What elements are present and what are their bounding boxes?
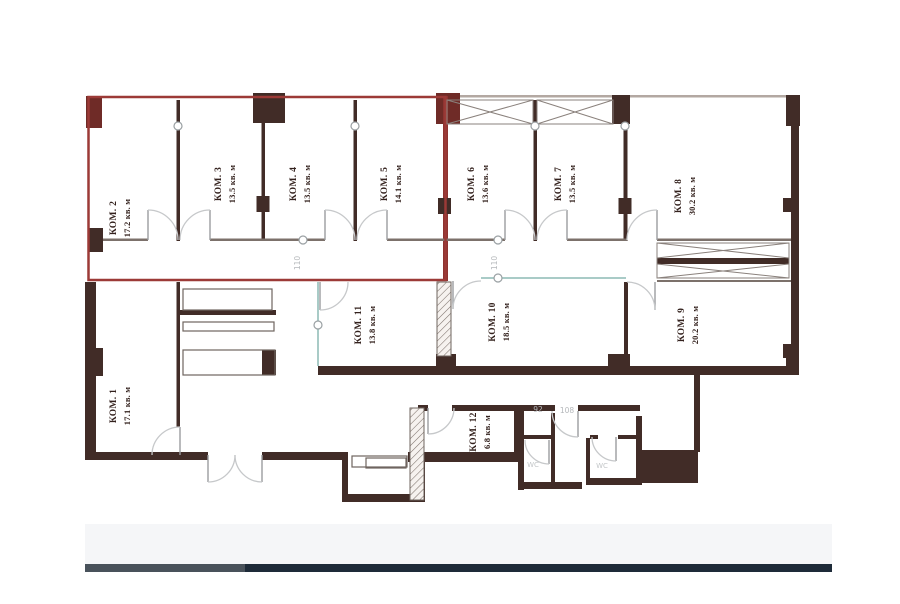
wc-right-label: WC	[596, 462, 608, 470]
windows	[447, 100, 789, 278]
room-6-label: КОМ. 6	[467, 167, 477, 201]
room-11-area: 13.8 кв. м	[367, 306, 377, 345]
room-2-area: 17.2 кв. м	[122, 199, 132, 238]
room-1-label: КОМ. 1	[109, 389, 119, 423]
corridor-number-right: 110	[490, 256, 499, 271]
room-2-label: КОМ. 2	[109, 201, 119, 235]
room-9-area: 20.2 кв. м	[690, 306, 700, 345]
room-4-label: КОМ. 4	[289, 167, 299, 201]
room-11-label: КОМ. 11	[354, 306, 364, 345]
room-6-area: 13.6 кв. м	[480, 165, 490, 204]
room-number-108: 108	[560, 406, 575, 415]
corridor-number-left: 110	[293, 256, 302, 271]
scrollbar-track[interactable]	[85, 564, 832, 572]
room-number-92: 92	[533, 405, 543, 414]
wall-junction-circles	[174, 122, 629, 329]
room-3-area: 13.5 кв. м	[227, 165, 237, 204]
room-9-label: КОМ. 9	[677, 308, 687, 342]
room-10-area: 18.5 кв. м	[501, 303, 511, 342]
room-10-label: КОМ. 10	[488, 302, 498, 341]
room-8-label: КОМ. 8	[674, 179, 684, 213]
teal-partitions	[318, 278, 626, 366]
lower-band	[85, 524, 832, 564]
wc-left-label: WC	[527, 461, 539, 469]
room-5-area: 14.1 кв. м	[393, 165, 403, 204]
floor-plan: КОМ. 1 17.1 кв. м КОМ. 2 17.2 кв. м КОМ.…	[0, 0, 900, 604]
room-8-area: 30.2 кв. м	[687, 177, 697, 216]
room-7-label: КОМ. 7	[554, 167, 564, 201]
room-12-area: 6.8 кв. м	[482, 415, 492, 449]
hatched-columns	[410, 282, 451, 500]
red-highlight-outline	[89, 97, 446, 280]
room-1-area: 17.1 кв. м	[122, 387, 132, 426]
room-7-area: 13.5 кв. м	[567, 165, 577, 204]
doors	[148, 210, 657, 482]
scrollbar-thumb[interactable]	[85, 564, 245, 572]
room-4-area: 13.5 кв. м	[302, 165, 312, 204]
room-3-label: КОМ. 3	[214, 167, 224, 201]
room-12-label: КОМ. 12	[469, 412, 479, 451]
room-5-label: КОМ. 5	[380, 167, 390, 201]
page: КОМ. 1 17.1 кв. м КОМ. 2 17.2 кв. м КОМ.…	[0, 0, 900, 604]
